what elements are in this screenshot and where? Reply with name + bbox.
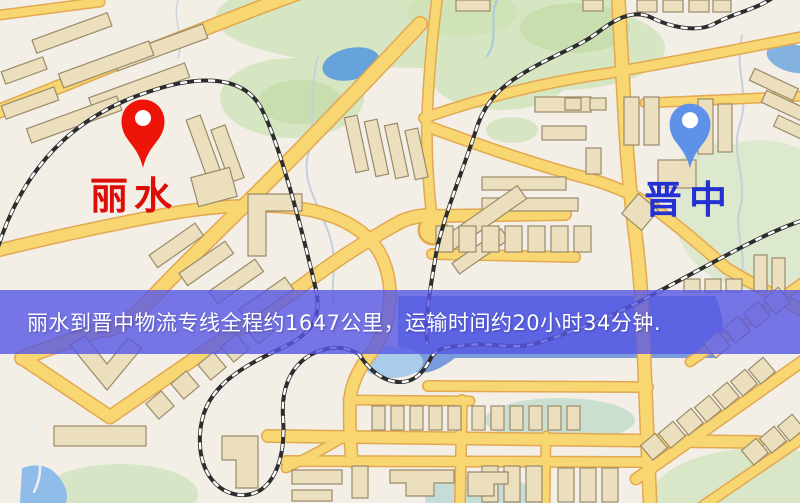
location-pin-icon (122, 100, 165, 169)
pin-hole (135, 110, 151, 126)
pin-hole (682, 112, 698, 128)
route-info-text: 丽水到晋中物流专线全程约1647公里，运输时间约20小时34分钟. (27, 307, 661, 337)
destination-city-label: 晋中 (644, 180, 734, 222)
map-viewport: 丽水 晋中 丽水到晋中物流专线全程约1647公里，运输时间约20小时34分钟. (0, 0, 800, 503)
route-info-banner: 丽水到晋中物流专线全程约1647公里，运输时间约20小时34分钟. (0, 290, 800, 354)
origin-city-label: 丽水 (90, 176, 178, 218)
buildings-layer (1, 0, 800, 502)
origin-pin[interactable] (122, 100, 165, 169)
map-canvas (0, 0, 800, 503)
